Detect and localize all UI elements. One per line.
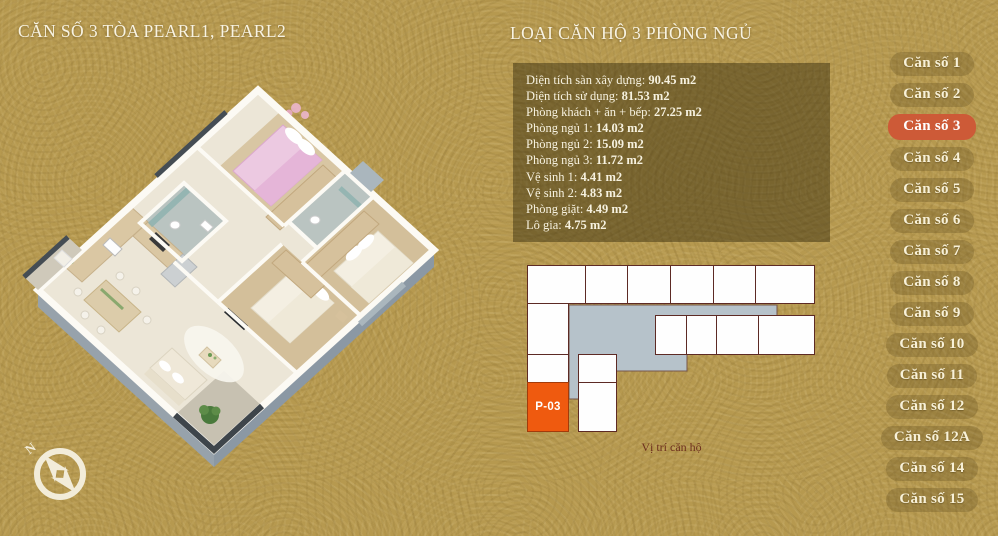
unit-block <box>627 265 671 304</box>
unit-block <box>527 303 569 355</box>
info-row: Lô gia: 4.75 m2 <box>526 217 830 233</box>
info-row: Vệ sinh 1: 4.41 m2 <box>526 169 830 185</box>
unit-button-1[interactable]: Căn số 1 <box>890 52 973 76</box>
compass-ring <box>37 451 83 497</box>
unit-button-12a[interactable]: Căn số 12A <box>881 426 983 450</box>
unit-button-11[interactable]: Căn số 11 <box>887 364 977 388</box>
floor-location-map: P-03 <box>527 265 816 432</box>
compass-icon: N <box>18 426 102 516</box>
info-row: Phòng ngủ 3: 11.72 m2 <box>526 152 830 168</box>
map-caption: Vị trí căn hộ <box>527 440 816 455</box>
unit-block <box>527 354 569 383</box>
unit-button-8[interactable]: Căn số 8 <box>890 271 973 295</box>
compass-north-label: N <box>22 439 39 457</box>
unit-block <box>670 265 714 304</box>
unit-button-2[interactable]: Căn số 2 <box>890 83 973 107</box>
info-row: Phòng ngủ 2: 15.09 m2 <box>526 136 830 152</box>
unit-button-9[interactable]: Căn số 9 <box>890 302 973 326</box>
unit-block <box>578 354 617 383</box>
unit-selector: Căn số 1 Căn số 2 Căn số 3 Căn số 4 Căn … <box>872 52 992 512</box>
active-unit-block[interactable]: P-03 <box>527 382 569 432</box>
unit-button-10[interactable]: Căn số 10 <box>886 333 977 357</box>
info-row: Diện tích sàn xây dựng: 90.45 m2 <box>526 72 830 88</box>
unit-button-3[interactable]: Căn số 3 <box>888 114 975 140</box>
unit-button-14[interactable]: Căn số 14 <box>886 457 977 481</box>
unit-block <box>578 382 617 432</box>
section-title: LOẠI CĂN HỘ 3 PHÒNG NGỦ <box>510 23 752 44</box>
unit-block <box>716 315 759 355</box>
unit-block <box>713 265 756 304</box>
unit-button-12[interactable]: Căn số 12 <box>886 395 977 419</box>
info-row: Phòng giặt: 4.49 m2 <box>526 201 830 217</box>
unit-button-4[interactable]: Căn số 4 <box>890 147 973 171</box>
info-row: Phòng ngủ 1: 14.03 m2 <box>526 120 830 136</box>
unit-block <box>686 315 717 355</box>
info-row: Phòng khách + ăn + bếp: 27.25 m2 <box>526 104 830 120</box>
unit-block <box>755 265 815 304</box>
info-row: Diện tích sử dụng: 81.53 m2 <box>526 88 830 104</box>
area-info-panel: Diện tích sàn xây dựng: 90.45 m2 Diện tí… <box>513 63 830 242</box>
page-title: CĂN SỐ 3 TÒA PEARL1, PEARL2 <box>18 21 286 42</box>
info-row: Vệ sinh 2: 4.83 m2 <box>526 185 830 201</box>
unit-block <box>758 315 815 355</box>
unit-block <box>655 315 687 355</box>
unit-block <box>527 265 586 304</box>
unit-button-6[interactable]: Căn số 6 <box>890 209 973 233</box>
unit-button-5[interactable]: Căn số 5 <box>890 178 973 202</box>
unit-block <box>585 265 628 304</box>
apartment-3d-floorplan <box>10 70 460 480</box>
unit-button-7[interactable]: Căn số 7 <box>890 240 973 264</box>
unit-button-15[interactable]: Căn số 15 <box>886 488 977 512</box>
